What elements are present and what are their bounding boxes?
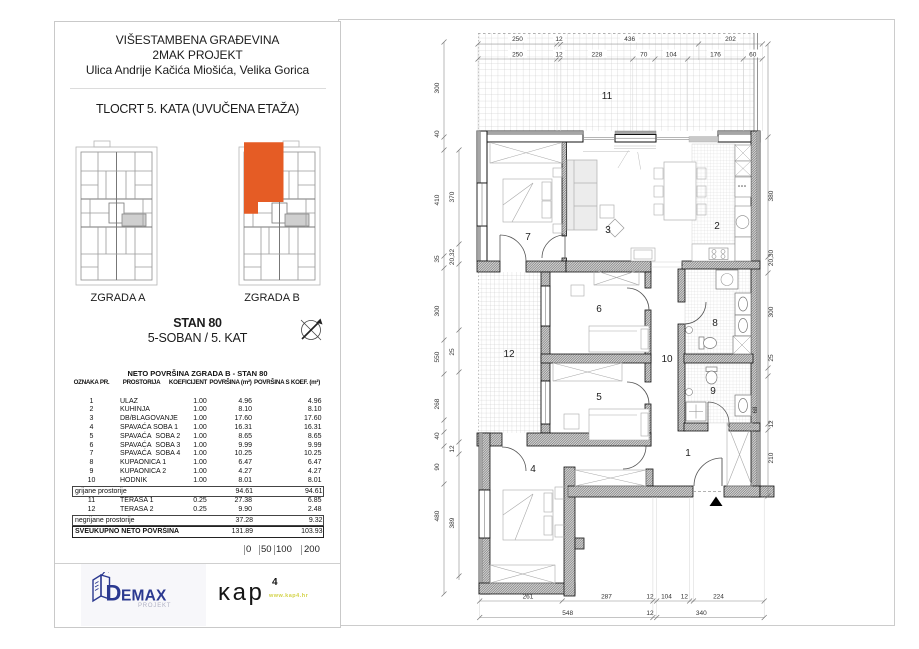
svg-text:228: 228 bbox=[591, 52, 602, 59]
svg-text:35: 35 bbox=[434, 255, 441, 263]
svg-text:12: 12 bbox=[646, 594, 654, 601]
svg-text:3: 3 bbox=[605, 225, 611, 236]
svg-text:250: 250 bbox=[512, 36, 523, 43]
svg-text:176: 176 bbox=[710, 52, 721, 59]
svg-text:300: 300 bbox=[768, 306, 775, 317]
svg-text:25: 25 bbox=[449, 348, 456, 356]
svg-text:548: 548 bbox=[562, 610, 573, 617]
svg-text:2: 2 bbox=[714, 221, 720, 232]
svg-text:25: 25 bbox=[768, 354, 775, 362]
svg-text:12: 12 bbox=[681, 594, 689, 601]
svg-text:210: 210 bbox=[768, 452, 775, 463]
svg-text:20,32: 20,32 bbox=[449, 248, 456, 265]
svg-text:12: 12 bbox=[449, 445, 456, 453]
svg-text:9: 9 bbox=[710, 386, 716, 397]
svg-text:436: 436 bbox=[624, 36, 635, 43]
svg-text:6: 6 bbox=[596, 304, 602, 315]
svg-text:40: 40 bbox=[434, 432, 441, 440]
svg-text:1: 1 bbox=[685, 448, 691, 459]
svg-text:550: 550 bbox=[434, 351, 441, 362]
svg-text:10: 10 bbox=[661, 354, 673, 365]
svg-text:40: 40 bbox=[434, 130, 441, 138]
svg-text:12: 12 bbox=[768, 420, 775, 428]
svg-text:261: 261 bbox=[523, 594, 534, 601]
svg-text:12: 12 bbox=[555, 36, 563, 43]
svg-text:287: 287 bbox=[601, 594, 612, 601]
svg-text:104: 104 bbox=[666, 52, 677, 59]
svg-text:380: 380 bbox=[768, 190, 775, 201]
svg-text:68: 68 bbox=[753, 406, 759, 413]
svg-text:370: 370 bbox=[449, 191, 456, 202]
svg-text:340: 340 bbox=[696, 610, 707, 617]
svg-text:70: 70 bbox=[640, 52, 648, 59]
svg-text:4: 4 bbox=[530, 464, 536, 475]
svg-text:300: 300 bbox=[434, 82, 441, 93]
svg-text:60: 60 bbox=[749, 52, 757, 59]
svg-text:12: 12 bbox=[646, 610, 654, 617]
svg-text:12: 12 bbox=[555, 52, 563, 59]
svg-text:389: 389 bbox=[449, 517, 456, 528]
svg-text:250: 250 bbox=[512, 52, 523, 59]
svg-text:8: 8 bbox=[712, 318, 718, 329]
svg-text:90: 90 bbox=[434, 463, 441, 471]
svg-text:104: 104 bbox=[661, 594, 672, 601]
svg-text:11: 11 bbox=[602, 91, 613, 102]
svg-text:224: 224 bbox=[713, 594, 724, 601]
svg-text:12: 12 bbox=[503, 349, 515, 360]
svg-text:410: 410 bbox=[434, 194, 441, 205]
svg-text:5: 5 bbox=[596, 392, 602, 403]
svg-text:300: 300 bbox=[434, 305, 441, 316]
svg-text:7: 7 bbox=[525, 232, 531, 243]
svg-text:268: 268 bbox=[434, 398, 441, 409]
svg-text:20,30: 20,30 bbox=[768, 249, 775, 266]
svg-text:202: 202 bbox=[725, 36, 736, 43]
svg-text:480: 480 bbox=[434, 510, 441, 521]
